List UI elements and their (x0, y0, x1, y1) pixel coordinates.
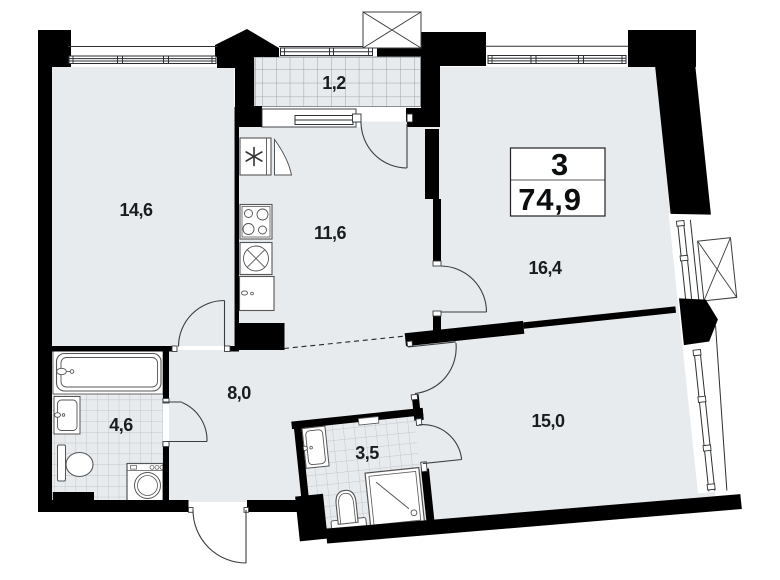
svg-text:4,6: 4,6 (109, 415, 133, 435)
svg-text:11,6: 11,6 (314, 223, 347, 243)
svg-text:16,4: 16,4 (528, 258, 562, 278)
svg-text:3,5: 3,5 (355, 443, 379, 463)
svg-text:14,6: 14,6 (119, 200, 153, 220)
svg-text:74,9: 74,9 (518, 182, 582, 217)
svg-text:8,0: 8,0 (227, 383, 251, 403)
svg-text:1,2: 1,2 (322, 73, 346, 93)
svg-text:15,0: 15,0 (531, 411, 565, 431)
svg-text:3: 3 (551, 147, 569, 182)
